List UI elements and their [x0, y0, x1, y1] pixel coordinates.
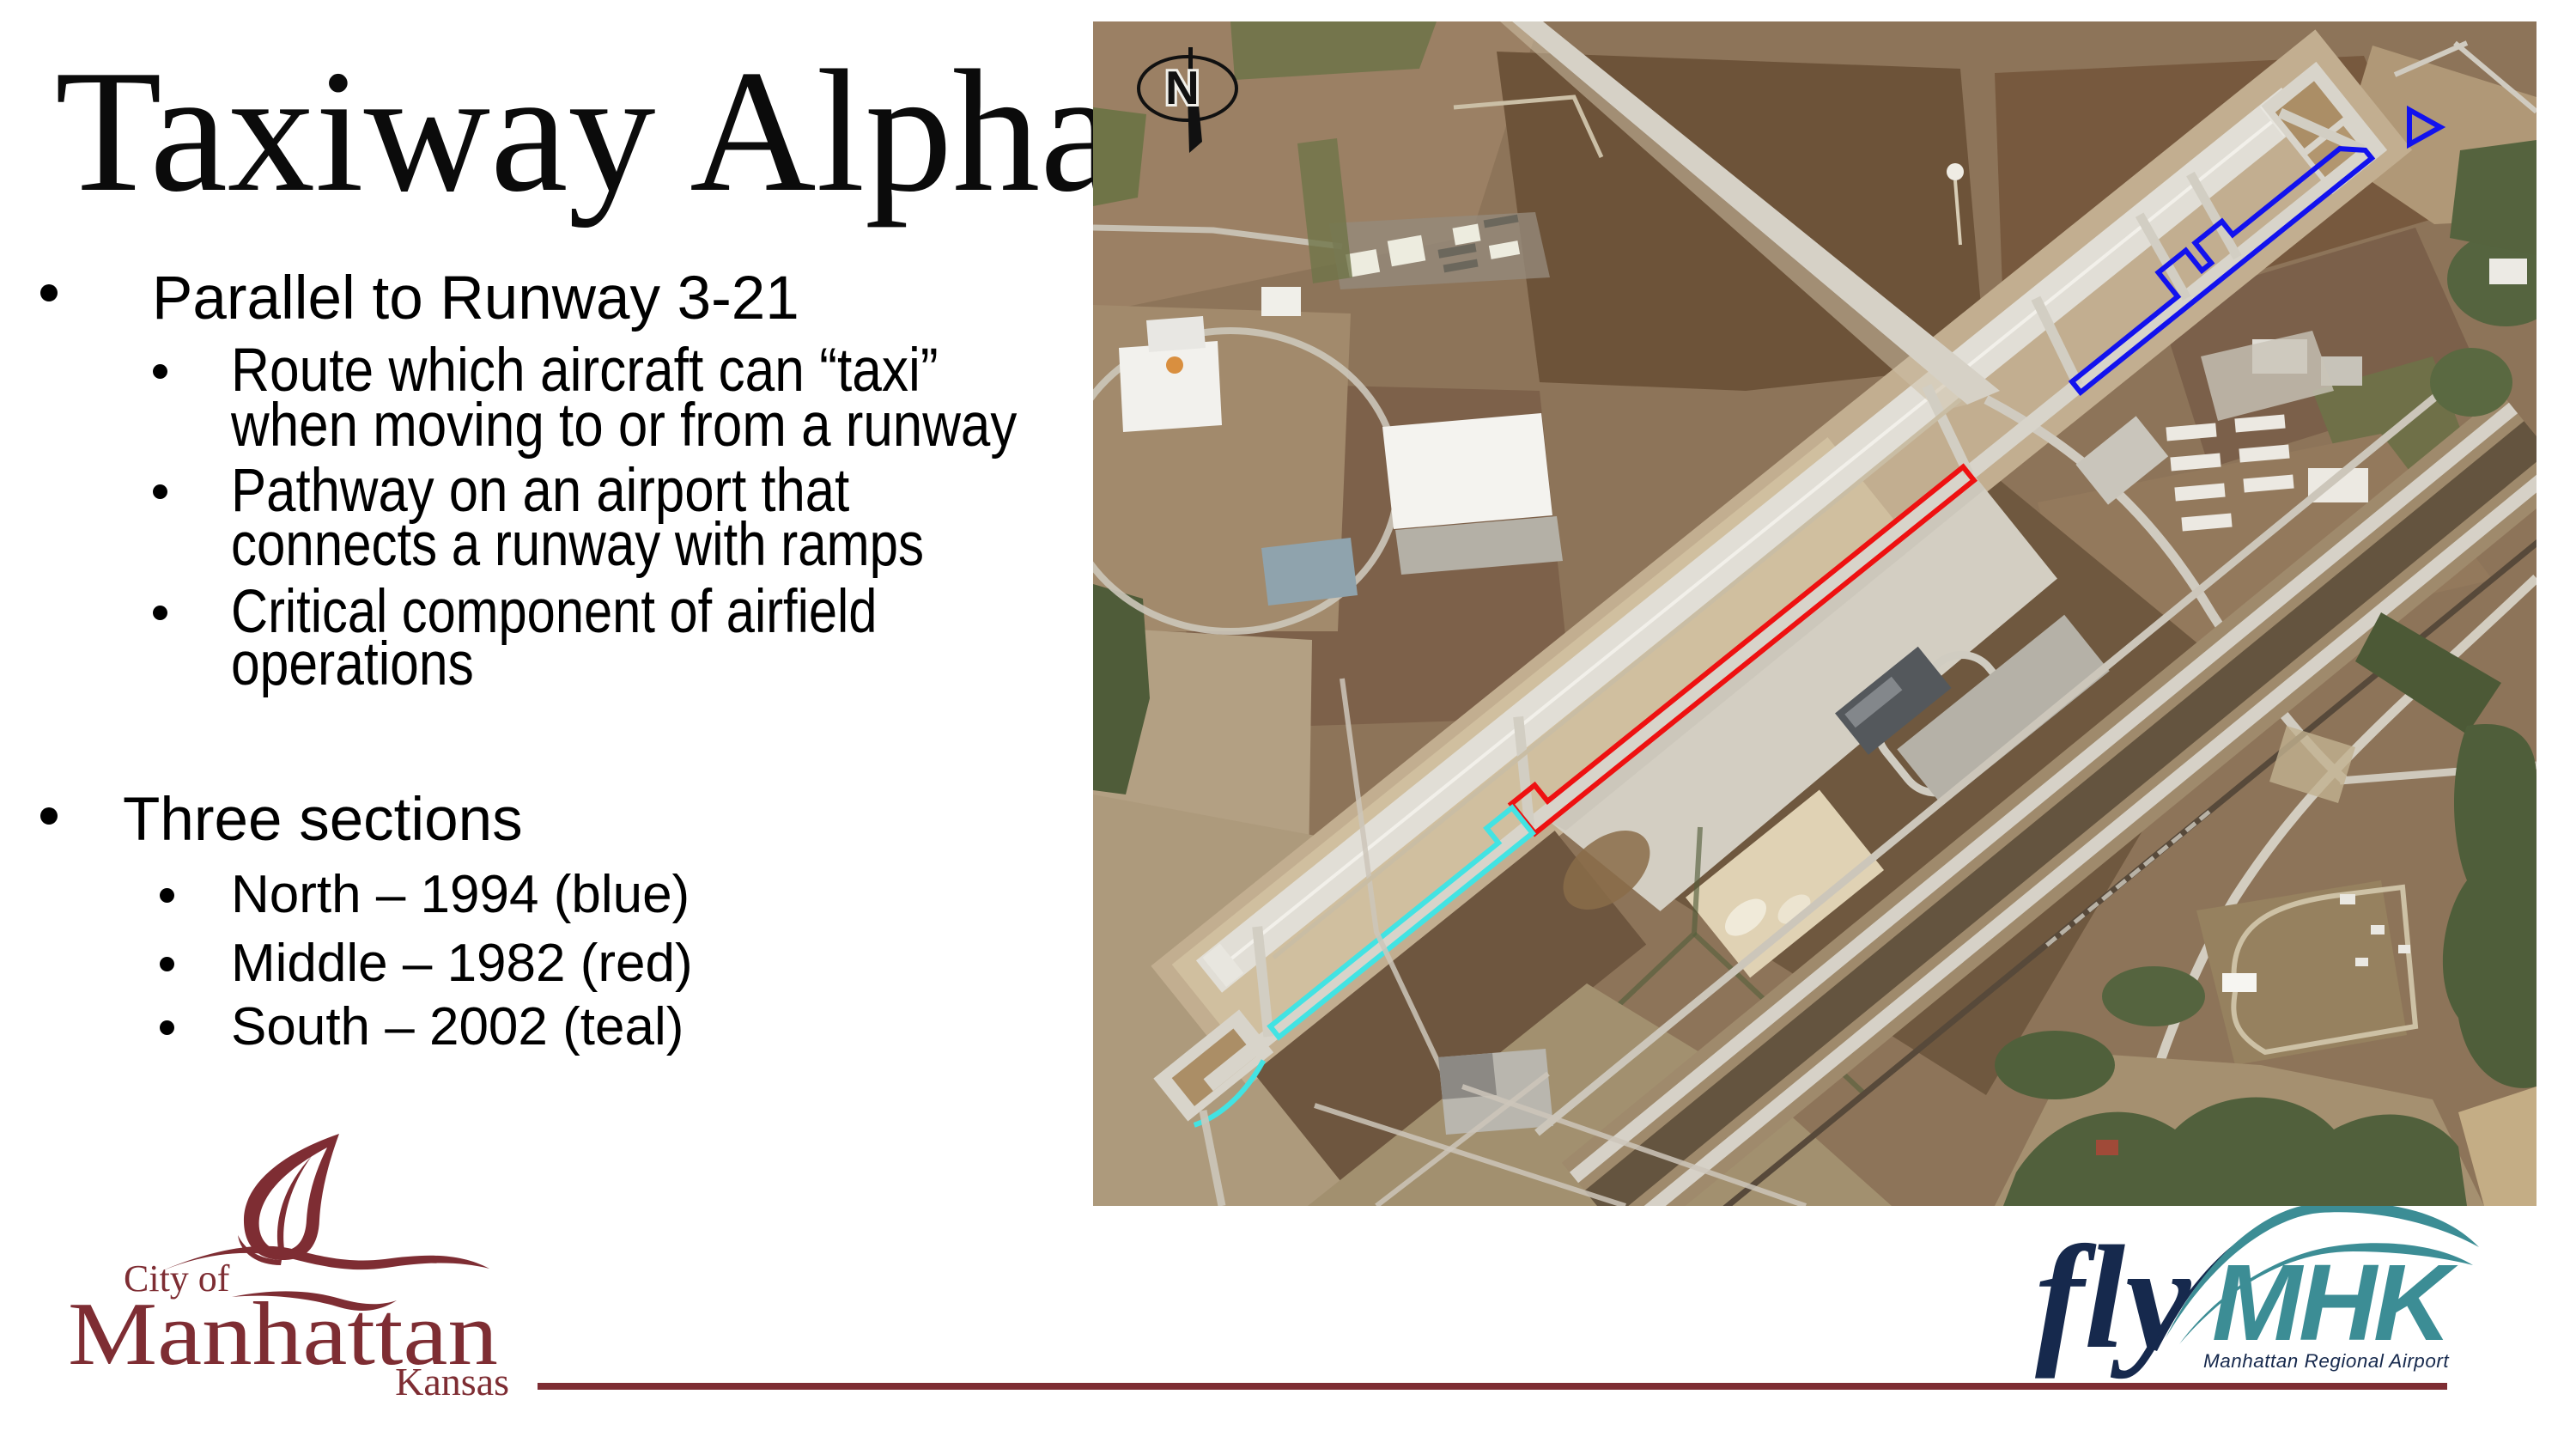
svg-text:Manhattan Regional Airport: Manhattan Regional Airport — [2203, 1350, 2450, 1372]
svg-text:MHK: MHK — [2212, 1242, 2458, 1363]
svg-text:Kansas: Kansas — [395, 1360, 509, 1403]
svg-text:N: N — [1165, 61, 1200, 114]
svg-text:fly: fly — [2035, 1216, 2191, 1379]
